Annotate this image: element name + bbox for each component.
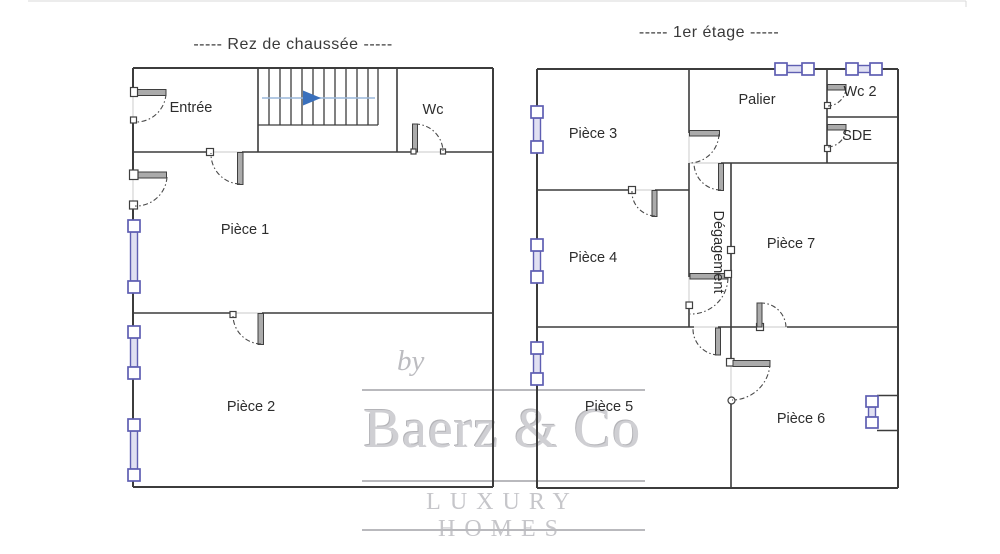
staircase bbox=[258, 68, 397, 152]
entree-door bbox=[131, 88, 167, 124]
window-symbol bbox=[128, 326, 140, 379]
stair-direction-arrow-icon bbox=[262, 91, 375, 106]
stair-treads bbox=[258, 68, 378, 125]
window-symbol bbox=[128, 419, 140, 481]
window-symbol bbox=[775, 63, 814, 75]
floorplan-drawing bbox=[0, 0, 1000, 554]
window-symbol bbox=[531, 106, 543, 153]
window-symbol bbox=[846, 63, 882, 75]
piece4-door bbox=[629, 187, 658, 217]
piece6-door bbox=[727, 359, 771, 405]
wc-door bbox=[411, 124, 446, 154]
degagement-top-door bbox=[694, 164, 724, 191]
piece2-door bbox=[230, 312, 264, 345]
scan-artifact-line bbox=[28, 1, 966, 7]
floorplan-page: by Baerz & Co LUXURY HOMES bbox=[0, 0, 1000, 554]
first-floor-plan bbox=[531, 63, 898, 488]
piece3-door bbox=[690, 131, 720, 164]
piece5-door bbox=[693, 328, 721, 355]
degagement-middle-door bbox=[686, 247, 735, 315]
window-symbol bbox=[531, 239, 543, 283]
arrow-head bbox=[303, 91, 321, 106]
ground-floor-plan bbox=[128, 68, 493, 487]
interior-wall bbox=[133, 152, 493, 313]
stair-enclosure-wall bbox=[258, 68, 397, 152]
piece1-door bbox=[207, 149, 244, 185]
piece7-door bbox=[757, 303, 787, 331]
exterior-wall bbox=[133, 68, 493, 487]
window-symbol bbox=[128, 220, 140, 293]
window-symbol bbox=[866, 396, 878, 428]
window-symbol bbox=[531, 342, 543, 385]
piece1-exterior-door bbox=[130, 170, 168, 209]
door-opening-guides bbox=[633, 133, 787, 400]
